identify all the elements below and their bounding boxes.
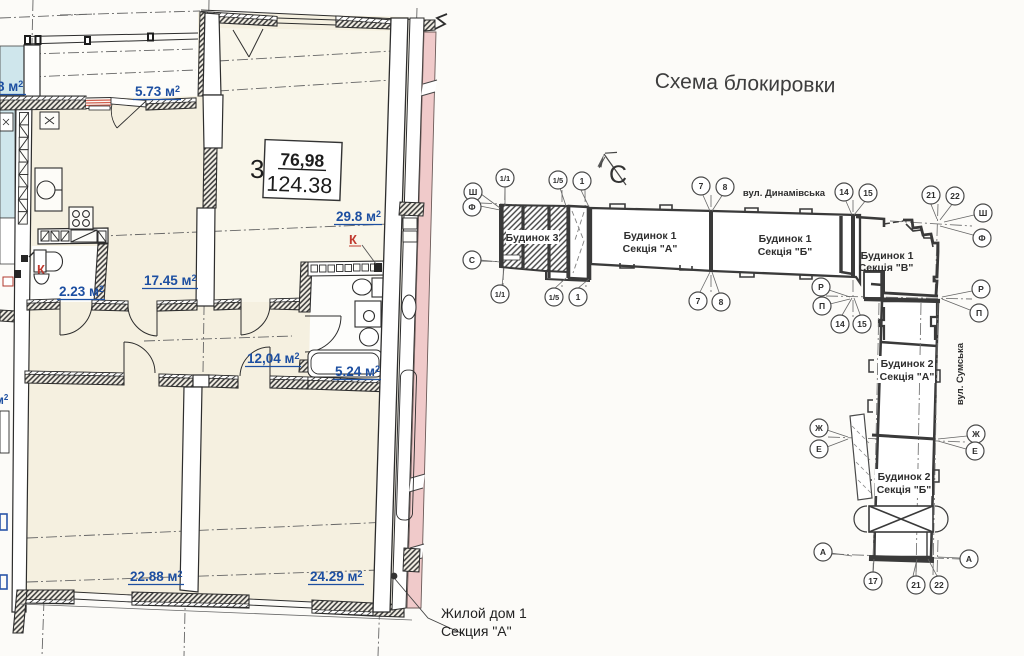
svg-text:1/5: 1/5 [553,176,563,185]
svg-text:1/5: 1/5 [549,293,559,302]
svg-text:Секция "А": Секция "А" [441,623,512,639]
svg-text:8: 8 [719,297,724,307]
svg-text:К: К [349,232,357,247]
svg-text:Будинок 1: Будинок 1 [759,233,812,245]
svg-text:Секція "А": Секція "А" [880,371,935,383]
svg-text:2.23 м2: 2.23 м2 [59,284,104,299]
svg-text:12,04 м2: 12,04 м2 [247,351,300,366]
svg-text:3: 3 [250,154,264,184]
svg-text:22: 22 [950,191,960,201]
svg-text:Ф: Ф [468,202,475,212]
svg-text:Будинок 3: Будинок 3 [506,232,559,244]
svg-text:Р: Р [978,284,984,294]
svg-text:С: С [469,255,475,265]
svg-text:Ж: Ж [971,429,980,439]
svg-text:29.8 м2: 29.8 м2 [336,209,381,224]
svg-text:14: 14 [839,187,849,197]
svg-text:24.29 м2: 24.29 м2 [310,569,363,584]
svg-text:1/1: 1/1 [500,174,510,183]
svg-text:вул. Динамівська: вул. Динамівська [743,188,826,199]
svg-text:Секція "А": Секція "А" [623,243,678,255]
svg-text:22: 22 [934,580,944,590]
svg-text:22.88 м2: 22.88 м2 [130,569,183,584]
svg-text:1/1: 1/1 [495,290,505,299]
svg-text:14: 14 [835,319,845,329]
svg-text:вул. Сумська: вул. Сумська [955,342,966,405]
svg-text:15: 15 [857,319,867,329]
svg-text:Ж: Ж [814,423,823,433]
svg-text:Е: Е [972,446,978,456]
svg-text:1: 1 [580,176,585,186]
svg-text:124.38: 124.38 [266,172,333,199]
svg-text:Ш: Ш [469,187,478,197]
svg-text:17: 17 [868,576,878,586]
svg-text:Будинок 2: Будинок 2 [878,471,931,483]
svg-text:Е: Е [816,444,822,454]
svg-text:А: А [966,554,972,564]
svg-text:21: 21 [911,580,921,590]
svg-text:Секція "Б": Секція "Б" [758,246,813,258]
svg-text:Жилой дом 1: Жилой дом 1 [441,605,527,621]
svg-text:1: 1 [576,292,581,302]
svg-text:5.73 м2: 5.73 м2 [135,84,180,99]
svg-text:17.45 м2: 17.45 м2 [144,273,197,288]
svg-text:П: П [819,301,825,311]
svg-text:Р: Р [818,282,824,292]
svg-text:Ш: Ш [979,208,988,218]
svg-text:П: П [976,308,982,318]
svg-text:21: 21 [926,190,936,200]
svg-text:76,98: 76,98 [280,149,325,171]
svg-text:Секція "Б": Секція "Б" [877,484,932,496]
svg-text:7: 7 [699,181,704,191]
svg-text:Будинок 1: Будинок 1 [861,250,914,262]
svg-text:Будинок 1: Будинок 1 [624,230,677,242]
svg-text:7: 7 [696,296,701,306]
svg-text:15: 15 [863,188,873,198]
svg-text:Схема блокировки: Схема блокировки [655,70,836,98]
svg-text:8: 8 [723,182,728,192]
svg-text:Будинок 2: Будинок 2 [881,358,934,370]
svg-text:5.24 м2: 5.24 м2 [335,364,380,379]
svg-text:Ф: Ф [978,233,985,243]
svg-text:С: С [609,161,627,189]
svg-text:А: А [820,547,826,557]
